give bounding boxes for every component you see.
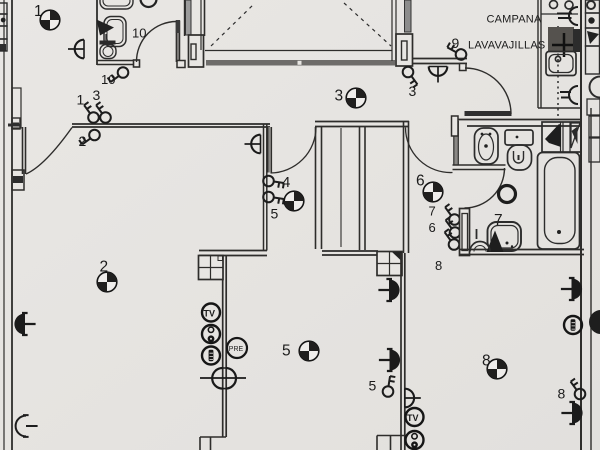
svg-text:8: 8 [558, 386, 566, 402]
svg-text:1: 1 [77, 92, 85, 108]
svg-text:5: 5 [369, 378, 377, 394]
svg-text:2: 2 [79, 133, 87, 149]
svg-text:5: 5 [282, 343, 291, 360]
svg-text:7: 7 [429, 204, 436, 219]
svg-text:3: 3 [93, 87, 101, 103]
svg-text:4: 4 [282, 174, 290, 191]
svg-text:6: 6 [416, 173, 425, 190]
svg-text:10: 10 [101, 72, 115, 87]
svg-text:8: 8 [435, 258, 442, 273]
svg-text:CAMPANA: CAMPANA [487, 14, 542, 26]
svg-text:LAVAVAJILLAS: LAVAVAJILLAS [468, 40, 545, 52]
svg-text:3: 3 [335, 88, 344, 105]
svg-text:TV: TV [204, 309, 216, 319]
svg-text:5: 5 [271, 206, 279, 222]
svg-text:10: 10 [132, 26, 146, 41]
svg-text:6: 6 [429, 220, 436, 235]
svg-text:PRE: PRE [229, 346, 244, 353]
svg-text:TV: TV [407, 413, 419, 423]
svg-text:3: 3 [409, 83, 417, 99]
